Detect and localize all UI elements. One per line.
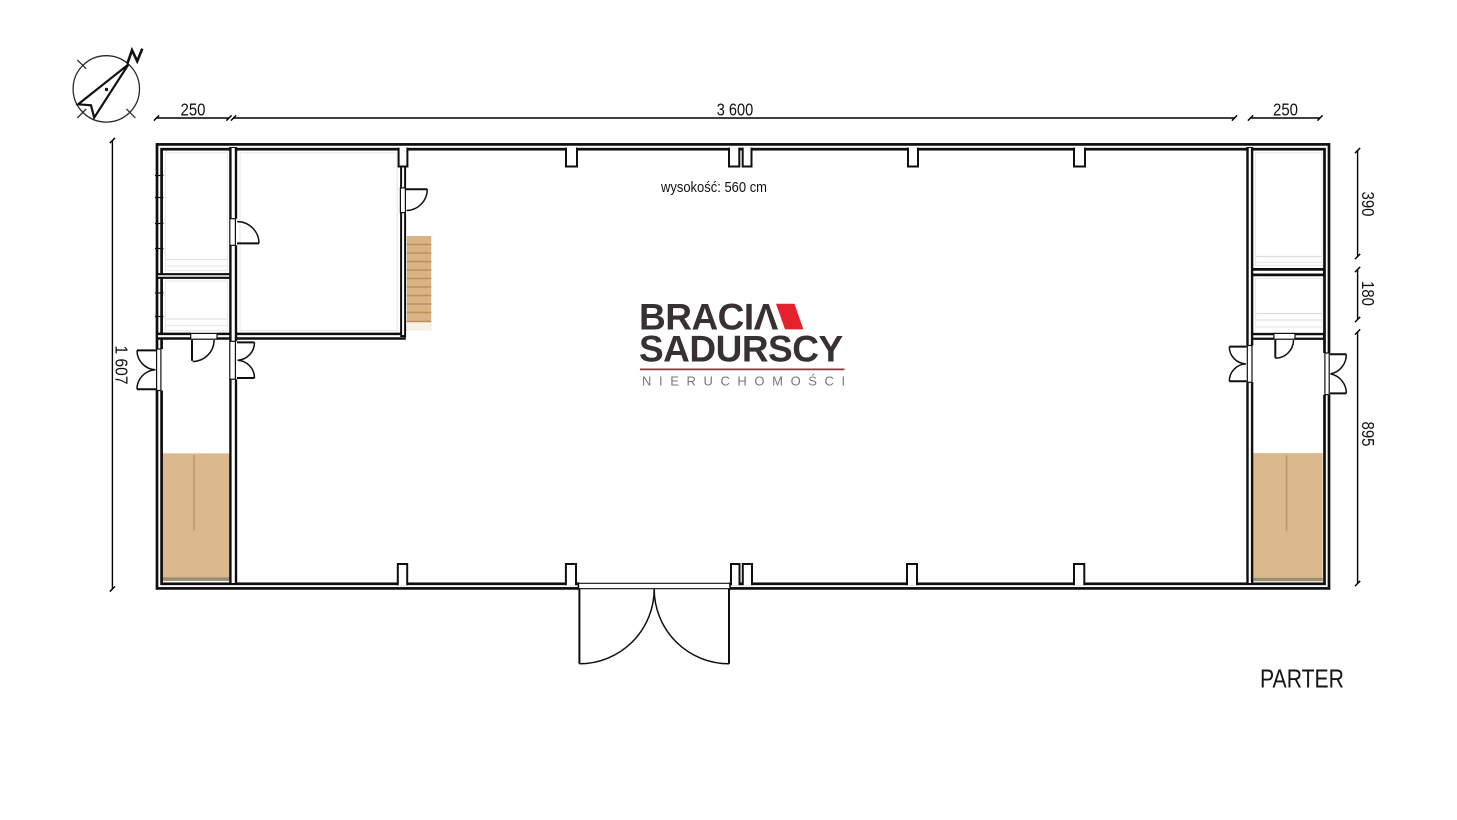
svg-text:250: 250 xyxy=(181,100,206,120)
svg-text:250: 250 xyxy=(1273,100,1298,120)
svg-text:390: 390 xyxy=(1358,192,1378,217)
svg-text:895: 895 xyxy=(1358,422,1378,447)
svg-text:SADURSCY: SADURSCY xyxy=(639,329,843,370)
svg-text:1 607: 1 607 xyxy=(111,346,131,385)
svg-text:3 600: 3 600 xyxy=(717,100,754,120)
svg-text:wysokość: 560 cm: wysokość: 560 cm xyxy=(660,179,767,196)
svg-text:PARTER: PARTER xyxy=(1260,666,1344,694)
svg-text:180: 180 xyxy=(1358,281,1378,306)
svg-text:NIERUCHOMOŚCI: NIERUCHOMOŚCI xyxy=(642,374,853,389)
